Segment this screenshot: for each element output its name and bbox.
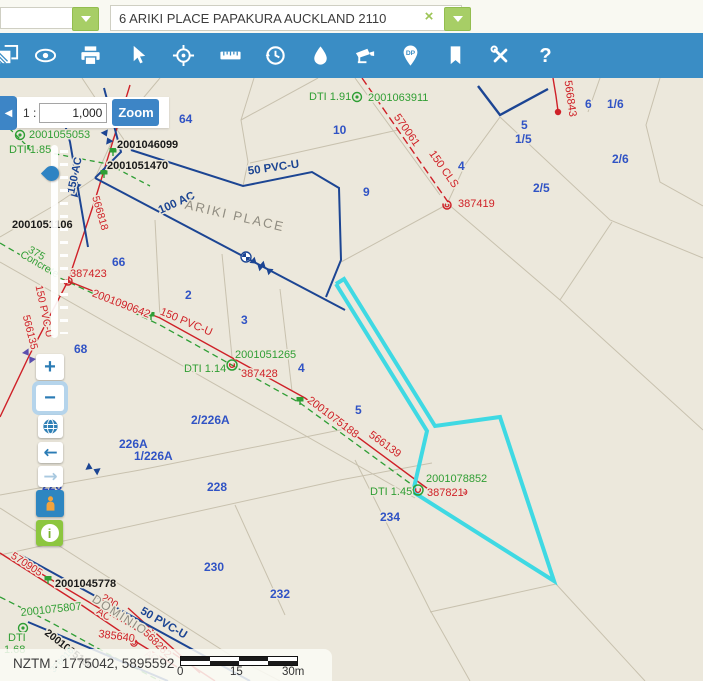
map-label: 387423 bbox=[70, 268, 107, 280]
coordinates-readout: NZTM : 1775042, 5895592 bbox=[13, 656, 174, 671]
circle2-symbol bbox=[353, 93, 362, 102]
map-label: 4 bbox=[298, 361, 305, 375]
scale-panel: 1 : Zoom bbox=[17, 97, 169, 128]
map-label: 2001055053 bbox=[29, 129, 90, 141]
map-line bbox=[155, 220, 160, 318]
map-line bbox=[336, 279, 554, 581]
scale-bar-tick: 30m bbox=[282, 666, 304, 678]
map-label: 385640 bbox=[98, 628, 136, 645]
history-button[interactable] bbox=[257, 33, 293, 78]
ruler-icon bbox=[219, 44, 242, 67]
map-line bbox=[478, 86, 548, 115]
full-extent-button[interactable] bbox=[38, 415, 63, 438]
map-label: DTI bbox=[8, 632, 26, 644]
clock-icon bbox=[264, 44, 287, 67]
visibility-button[interactable] bbox=[27, 33, 63, 78]
map-label: 1/6 bbox=[607, 97, 624, 111]
flag-symbol bbox=[297, 397, 304, 405]
previous-extent-button[interactable]: ← bbox=[38, 442, 63, 463]
layer-combo-input[interactable] bbox=[0, 7, 78, 29]
info-icon: i bbox=[41, 524, 59, 542]
flag-symbol bbox=[110, 148, 117, 156]
help-button[interactable]: ? bbox=[527, 33, 563, 78]
water-drop-icon bbox=[309, 44, 332, 67]
dp-pin-icon: DP bbox=[399, 44, 422, 67]
toolbar: DP ? bbox=[0, 33, 703, 78]
meter-symbol bbox=[241, 252, 251, 262]
map-line bbox=[553, 78, 558, 111]
measure-button[interactable] bbox=[212, 33, 248, 78]
map-label: 64 bbox=[179, 112, 193, 126]
layers-button[interactable] bbox=[0, 33, 26, 78]
map-label: 2/226A bbox=[191, 413, 230, 427]
info-button[interactable]: i bbox=[36, 520, 63, 546]
map-label: 50 PVC-U bbox=[247, 158, 300, 177]
select-button[interactable] bbox=[120, 33, 156, 78]
chevron-down-icon bbox=[81, 16, 91, 22]
map-label: ARIKI PLACE bbox=[184, 197, 287, 235]
map-label: 2001078852 bbox=[426, 473, 487, 485]
search-input[interactable] bbox=[110, 5, 462, 31]
map-label: DTI 1.91 bbox=[309, 91, 351, 103]
water-button[interactable] bbox=[302, 33, 338, 78]
collapse-panel-button[interactable]: ◀ bbox=[0, 96, 17, 130]
bookmark-icon bbox=[444, 44, 467, 67]
chevron-down-icon bbox=[453, 16, 463, 22]
street-view-button[interactable] bbox=[36, 490, 64, 517]
map-label: 387419 bbox=[458, 198, 495, 210]
map-line bbox=[448, 204, 703, 430]
map-label: 234 bbox=[380, 510, 400, 524]
map-label: 66 bbox=[112, 255, 126, 269]
map-label: 2001075807 bbox=[20, 601, 82, 619]
map-line bbox=[250, 130, 398, 163]
map-label: 228 bbox=[207, 480, 227, 494]
map-label: 2/5 bbox=[533, 181, 550, 195]
zoom-slider-ticks bbox=[60, 150, 68, 334]
zoom-out-button[interactable]: − bbox=[36, 385, 64, 411]
map-label: 2001051470 bbox=[107, 160, 168, 172]
map-label: 6 bbox=[585, 97, 592, 111]
map-label: 5 bbox=[521, 118, 528, 132]
map-label: 566139 bbox=[366, 429, 403, 460]
map-label: 3 bbox=[241, 313, 248, 327]
map-label: 387428 bbox=[241, 368, 278, 380]
dot-symbol bbox=[555, 109, 561, 115]
bowtie-symbol bbox=[85, 463, 100, 476]
cctv-camera-icon bbox=[354, 44, 377, 67]
map-label: 566818 bbox=[89, 195, 110, 232]
printer-icon bbox=[79, 44, 102, 67]
print-button[interactable] bbox=[72, 33, 108, 78]
map-label: 10 bbox=[333, 123, 347, 137]
target-icon bbox=[172, 44, 195, 67]
scale-prefix-label: 1 : bbox=[23, 106, 36, 120]
map-line bbox=[222, 254, 232, 357]
map-label: 150 AC bbox=[65, 156, 84, 195]
map-label: 5 bbox=[355, 403, 362, 417]
map-label: 68 bbox=[74, 342, 88, 356]
map-line bbox=[646, 78, 703, 206]
map-line bbox=[0, 463, 432, 555]
svg-text:?: ? bbox=[539, 45, 551, 67]
map-label: DTI 1.45 bbox=[370, 486, 412, 498]
map-label: 566843 bbox=[561, 80, 578, 118]
map-label: 2001063911 bbox=[368, 92, 428, 104]
person-icon bbox=[41, 494, 60, 513]
dp-marker-button[interactable]: DP bbox=[392, 33, 428, 78]
scale-bar-tick: 15 bbox=[230, 666, 243, 678]
scale-input[interactable] bbox=[39, 103, 107, 123]
bookmark-button[interactable] bbox=[437, 33, 473, 78]
map-label: 2001075188 bbox=[305, 394, 361, 440]
map-label: 387821 bbox=[427, 487, 464, 499]
map-line bbox=[556, 584, 645, 681]
next-extent-button[interactable]: → bbox=[38, 466, 63, 487]
map-line bbox=[341, 204, 448, 262]
map-line bbox=[280, 289, 292, 391]
map-label: 2001045778 bbox=[55, 578, 116, 590]
map-canvas[interactable]: 2001055053DTI 1.852001046099200105147020… bbox=[0, 78, 703, 681]
top-search-bar: × bbox=[0, 0, 703, 33]
map-label: 1/226A bbox=[134, 449, 173, 463]
map-label: 2001090642 bbox=[90, 288, 151, 321]
cctv-button[interactable] bbox=[347, 33, 383, 78]
map-label: 2/6 bbox=[612, 152, 629, 166]
map-line bbox=[560, 222, 612, 300]
layer-combo-dropdown-button[interactable] bbox=[72, 7, 99, 31]
map-label: 566135 bbox=[20, 314, 40, 351]
map-label: 1/5 bbox=[515, 132, 532, 146]
map-label: 570905 bbox=[9, 550, 45, 579]
map-line bbox=[430, 584, 556, 612]
eye-icon bbox=[34, 44, 57, 67]
map-line bbox=[95, 178, 345, 310]
layers-icon bbox=[0, 44, 20, 67]
clear-search-icon[interactable]: × bbox=[421, 9, 437, 25]
scale-bar-tick: 0 bbox=[177, 666, 183, 678]
scale-bar bbox=[180, 656, 298, 666]
status-bar: NZTM : 1775042, 5895592 0 15 30m bbox=[0, 649, 332, 681]
map-label: 230 bbox=[204, 560, 224, 574]
map-label: DTI 1.14 bbox=[184, 363, 226, 375]
svg-text:DP: DP bbox=[405, 50, 415, 57]
map-label: 2001046099 bbox=[117, 139, 178, 151]
tools-button[interactable] bbox=[482, 33, 518, 78]
map-container: 2001055053DTI 1.852001046099200105147020… bbox=[0, 78, 703, 681]
globe-icon bbox=[41, 417, 60, 436]
map-label: 2001051265 bbox=[235, 349, 296, 361]
zoom-in-button[interactable]: + bbox=[36, 354, 64, 380]
map-label: 4 bbox=[458, 159, 465, 173]
map-label: DTI 1.85 bbox=[9, 144, 51, 156]
map-label: 9 bbox=[363, 185, 370, 199]
tools-icon bbox=[489, 44, 512, 67]
map-label: 232 bbox=[270, 587, 290, 601]
help-icon: ? bbox=[534, 44, 557, 67]
map-label: 2 bbox=[185, 288, 192, 302]
locate-button[interactable] bbox=[165, 33, 201, 78]
search-dropdown-button[interactable] bbox=[444, 7, 471, 31]
zoom-button[interactable]: Zoom bbox=[112, 99, 159, 126]
cursor-icon bbox=[127, 44, 150, 67]
map-line bbox=[448, 117, 500, 202]
